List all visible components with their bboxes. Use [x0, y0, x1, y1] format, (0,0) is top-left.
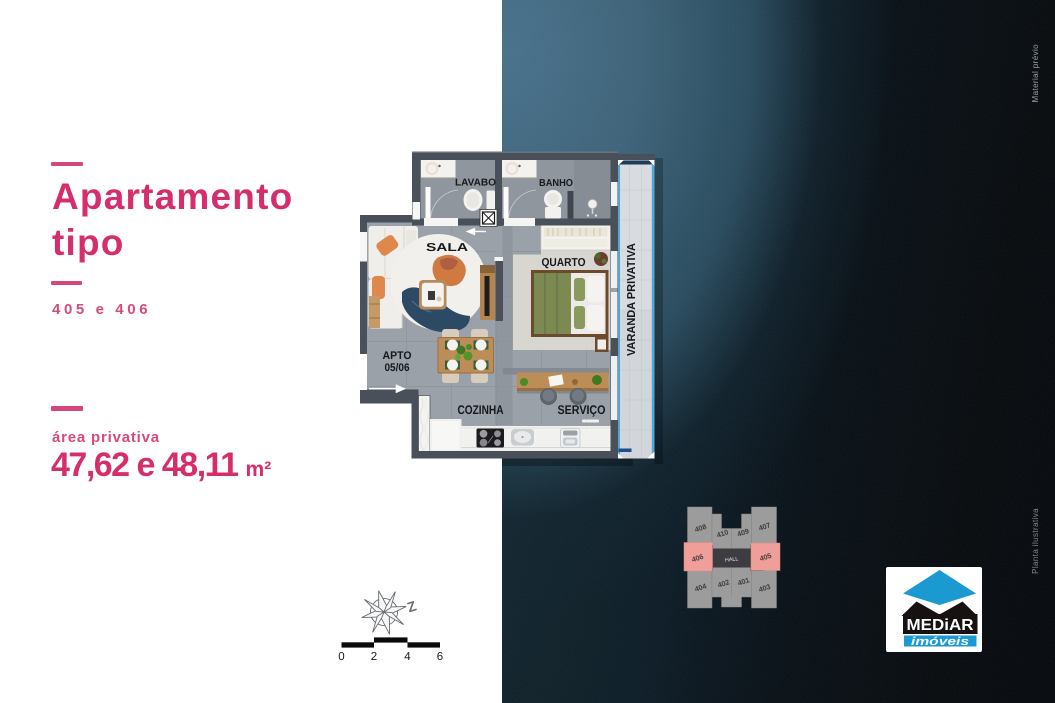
svg-text:2: 2 — [371, 651, 377, 663]
svg-text:APTO: APTO — [383, 350, 412, 362]
svg-text:6: 6 — [437, 651, 443, 663]
svg-text:Z: Z — [405, 597, 419, 615]
svg-text:LAVABO: LAVABO — [455, 178, 496, 189]
svg-text:0: 0 — [338, 651, 344, 663]
svg-text:05/06: 05/06 — [385, 362, 410, 374]
svg-text:imóveis: imóveis — [911, 636, 969, 648]
svg-text:MEDiAR: MEDiAR — [907, 617, 974, 634]
svg-text:COZINHA: COZINHA — [458, 403, 504, 417]
svg-text:SALA: SALA — [426, 242, 468, 254]
svg-text:VARANDA PRIVATIVA: VARANDA PRIVATIVA — [626, 243, 638, 356]
svg-text:QUARTO: QUARTO — [542, 257, 586, 269]
svg-text:4: 4 — [404, 651, 411, 663]
svg-text:BANHO: BANHO — [539, 178, 573, 189]
svg-text:SERVIÇO: SERVIÇO — [558, 403, 606, 417]
